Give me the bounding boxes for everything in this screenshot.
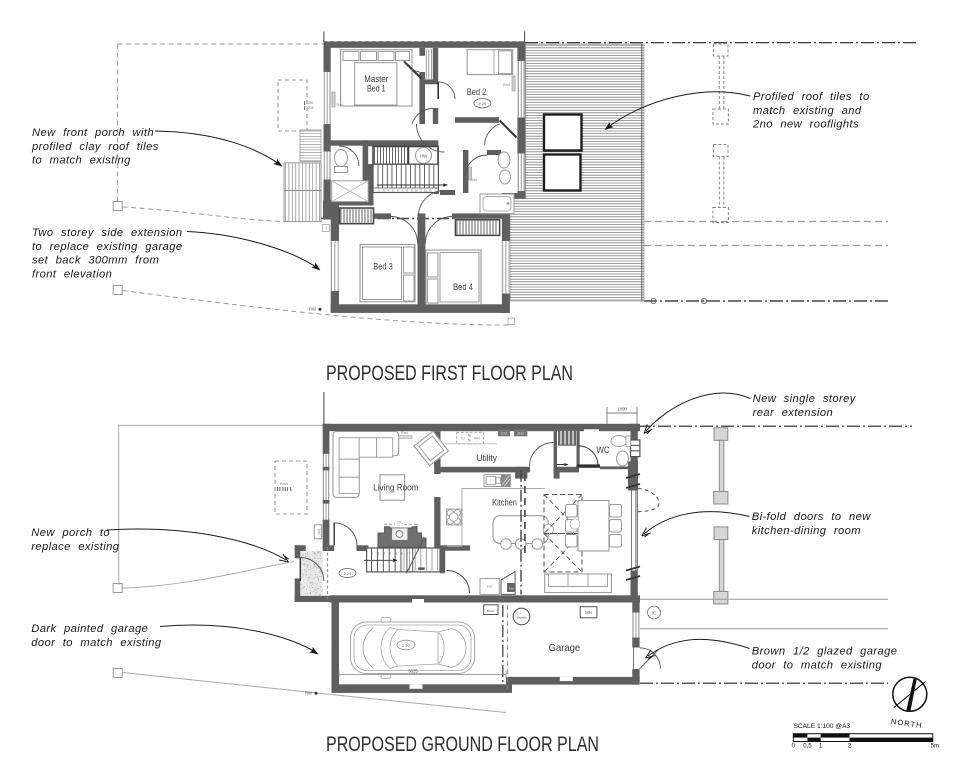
svg-text:New front porch with: New front porch with — [32, 127, 154, 139]
svg-text:Bed 1: Bed 1 — [367, 84, 386, 94]
svg-text:▌1050: ▌1050 — [304, 101, 314, 105]
svg-text:Bed 4: Bed 4 — [453, 282, 473, 292]
svg-text:IC: IC — [652, 611, 657, 616]
svg-text:▌1205: ▌1205 — [304, 106, 314, 110]
svg-text:Bed 3: Bed 3 — [373, 261, 393, 271]
svg-text:TD: TD — [460, 437, 465, 441]
svg-text:door to match existing: door to match existing — [752, 659, 883, 671]
svg-text:Bed 2: Bed 2 — [467, 87, 487, 97]
svg-text:replace existing: replace existing — [31, 541, 120, 553]
svg-text:rear extension: rear extension — [753, 407, 834, 419]
svg-text:12: 12 — [424, 188, 428, 192]
svg-text:2.20: 2.20 — [344, 571, 353, 576]
svg-text:Rad: Rad — [503, 83, 510, 87]
svg-text:TX: TX — [397, 521, 402, 525]
svg-text:1491: 1491 — [318, 528, 322, 536]
svg-text:2no new rooflights: 2no new rooflights — [752, 119, 859, 131]
svg-text:Two storey side extension: Two storey side extension — [32, 227, 183, 239]
svg-text:5825: 5825 — [408, 669, 418, 674]
svg-text:11: 11 — [419, 188, 422, 192]
svg-text:New porch to: New porch to — [31, 527, 110, 539]
svg-text:Brown 1/2 glazed garage: Brown 1/2 glazed garage — [752, 646, 898, 658]
svg-text:3065: 3065 — [333, 640, 338, 650]
svg-text:T-M: T-M — [509, 587, 514, 591]
svg-text:2.20: 2.20 — [479, 101, 488, 106]
svg-text:set back 300mm from: set back 300mm from — [32, 255, 159, 267]
svg-text:Garage: Garage — [549, 643, 581, 654]
svg-text:F/F: F/F — [487, 585, 493, 589]
svg-text:SCALE 1:100 @A3: SCALE 1:100 @A3 — [794, 723, 851, 730]
svg-text:▌▌ ▌▌▌ ▌: ▌▌ ▌▌▌ ▌ — [277, 487, 292, 491]
svg-text:match existing and: match existing and — [753, 105, 862, 117]
svg-text:Megaflo: Megaflo — [517, 615, 527, 619]
svg-text:HW: HW — [420, 154, 428, 159]
svg-text:front elevation: front elevation — [32, 268, 112, 280]
svg-text:1800: 1800 — [617, 407, 627, 412]
svg-text:2.20: 2.20 — [402, 643, 411, 648]
svg-text:13: 13 — [428, 188, 432, 192]
svg-text:Living Room: Living Room — [373, 483, 419, 493]
svg-text:Boiler: Boiler — [487, 609, 495, 613]
svg-text:WM: WM — [474, 437, 480, 441]
svg-text:Master: Master — [364, 74, 388, 84]
svg-text:WC: WC — [597, 445, 610, 455]
svg-text:PROPOSED FIRST FLOOR PLAN: PROPOSED FIRST FLOOR PLAN — [326, 362, 573, 385]
svg-text:RW: RW — [309, 307, 316, 312]
svg-text:door to match existing: door to match existing — [31, 637, 162, 649]
svg-text:Utility: Utility — [476, 453, 497, 463]
svg-text:to replace existing garage: to replace existing garage — [32, 241, 183, 253]
svg-text:5m: 5m — [931, 744, 939, 750]
svg-text:New single storey: New single storey — [753, 393, 857, 405]
svg-text:MH: MH — [585, 610, 592, 615]
svg-text:3: 3 — [325, 227, 327, 231]
svg-text:Bi-fold doors to new: Bi-fold doors to new — [752, 511, 871, 523]
svg-text:C-U: C-U — [501, 432, 507, 436]
svg-text:0,5: 0,5 — [803, 744, 812, 750]
svg-text:Profiled roof tiles to: Profiled roof tiles to — [753, 91, 870, 103]
svg-text:kitchen-dining room: kitchen-dining room — [752, 525, 861, 537]
svg-text:10: 10 — [415, 188, 419, 192]
svg-text:PROPOSED GROUND FLOOR PLAN: PROPOSED GROUND FLOOR PLAN — [326, 733, 599, 756]
svg-text:to match existing: to match existing — [32, 155, 131, 167]
svg-text:Pond: Pond — [280, 482, 288, 486]
svg-text:E-U: E-U — [518, 432, 524, 436]
svg-text:Kitchen: Kitchen — [492, 497, 517, 507]
svg-text:profiled clay roof tiles: profiled clay roof tiles — [31, 141, 159, 153]
svg-text:Rad: Rad — [337, 103, 344, 107]
svg-text:Rad: Rad — [401, 431, 408, 435]
svg-text:Dark painted garage: Dark painted garage — [31, 623, 148, 635]
svg-text:RW: RW — [305, 691, 312, 696]
